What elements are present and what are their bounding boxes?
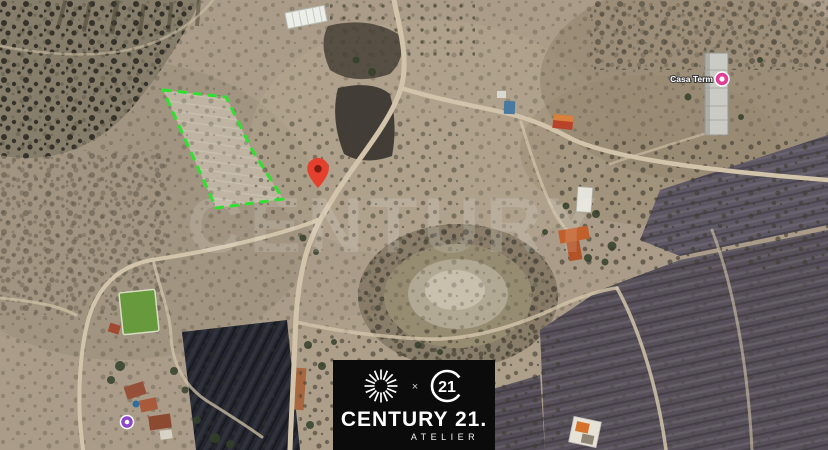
casa-place-marker: Casa Term (670, 72, 729, 86)
satellite-listing-image: CENTURY Casa Term × 21 (0, 0, 828, 450)
purple-place-marker-icon (121, 416, 134, 429)
brand-division: ATELIER (411, 432, 479, 442)
green-sports-field (119, 289, 159, 335)
brand-name: CENTURY 21. (341, 408, 487, 431)
watermark-text: CENTURY (187, 181, 603, 269)
bottom-orange-building (569, 416, 602, 447)
casa-label: Casa Term (670, 74, 713, 84)
logo-separator: × (412, 381, 418, 393)
casa-building (705, 53, 728, 135)
satellite-basemap: CENTURY Casa Term × 21 (0, 0, 828, 450)
seal-number: 21 (438, 379, 456, 396)
brand-logo-card: × 21 CENTURY 21. ATELIER (333, 360, 495, 450)
